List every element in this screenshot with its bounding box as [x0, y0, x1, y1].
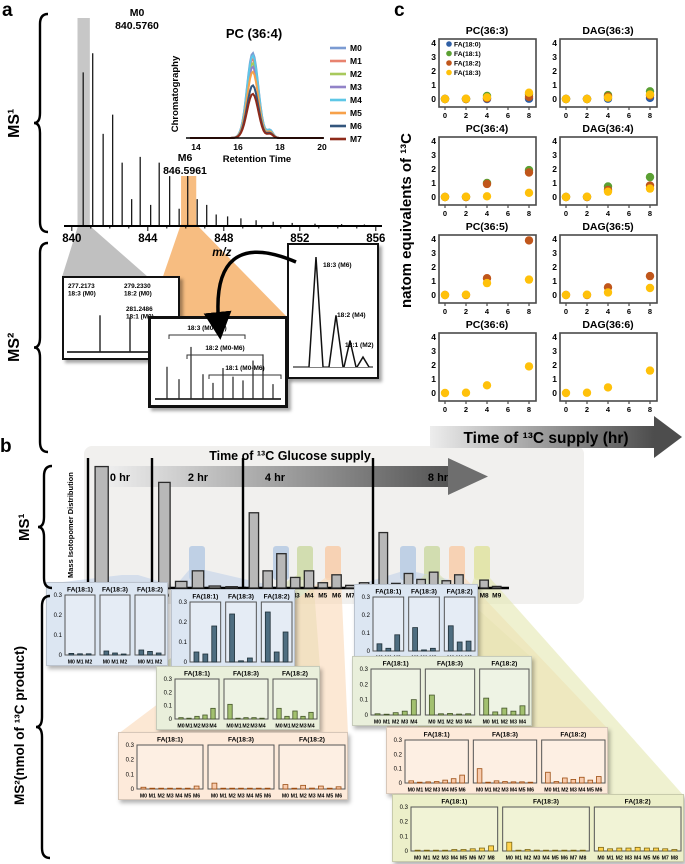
figure: a b c 840844848852856m/z PC (36:4)Chroma… — [0, 0, 685, 864]
curved-arrow-overlay — [0, 0, 685, 864]
